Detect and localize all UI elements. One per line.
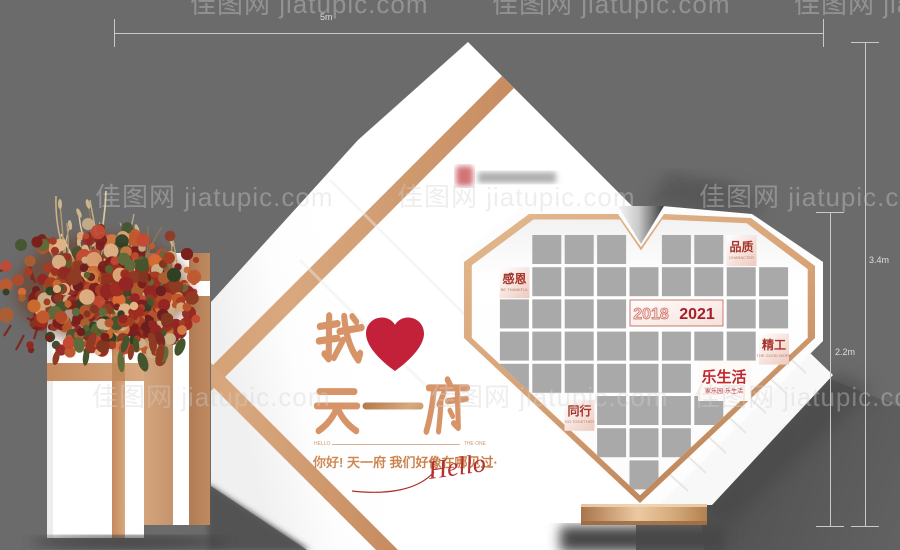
svg-text:2018: 2018 <box>633 306 669 323</box>
svg-text:2021: 2021 <box>679 306 715 323</box>
svg-text:GO TOGETHER: GO TOGETHER <box>565 419 595 424</box>
svg-text:BE THANKFUL: BE THANKFUL <box>501 287 529 292</box>
svg-text:感恩: 感恩 <box>502 271 526 286</box>
svg-text:THE GOOD WORK: THE GOOD WORK <box>757 353 792 358</box>
svg-text:品质: 品质 <box>729 239 753 254</box>
svg-text:CHARACTER: CHARACTER <box>729 255 754 260</box>
svg-text:精工: 精工 <box>762 337 786 352</box>
